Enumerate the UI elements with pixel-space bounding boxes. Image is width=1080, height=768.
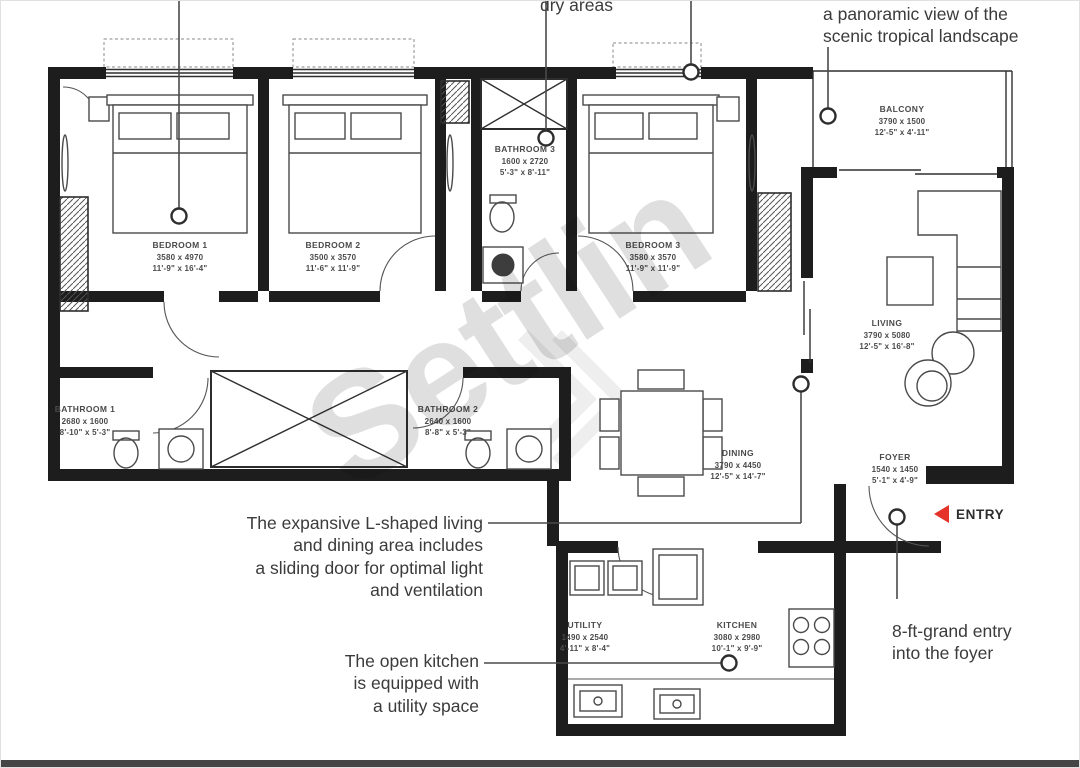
- room-label-bathroom1: BATHROOM 1 2680 x 1600 8'-10" x 5'-3": [55, 403, 116, 439]
- room-label-dining: DINING 3790 x 4450 12'-5" x 14'-7": [710, 447, 765, 483]
- room-label-bathroom3: BATHROOM 3 1600 x 2720 5'-3" x 8'-11": [495, 143, 556, 179]
- floorplan-page: BEDROOM 1 3580 x 4970 11'-9" x 16'-4" BE…: [0, 0, 1080, 768]
- room-dim-ft: 12'-5" x 16'-8": [859, 341, 914, 353]
- room-dim-ft: 10'-1" x 9'-9": [712, 643, 763, 655]
- living-furniture: [887, 191, 1001, 406]
- room-label-balcony: BALCONY 3790 x 1500 12'-5" x 4'-11": [875, 103, 930, 139]
- room-dim-ft: 4'-11" x 8'-4": [560, 643, 610, 655]
- note-living-dining: The expansive L-shaped living and dining…: [197, 512, 483, 602]
- room-name: LIVING: [859, 317, 914, 330]
- note-panoramic-view: a panoramic view of the scenic tropical …: [823, 3, 1019, 48]
- room-dim-mm: 3500 x 3570: [305, 252, 360, 264]
- note-grand-entry: 8-ft-grand entry into the foyer: [892, 620, 1012, 665]
- entry-marker: ENTRY: [934, 505, 1004, 523]
- room-label-bedroom1: BEDROOM 1 3580 x 4970 11'-9" x 16'-4": [152, 239, 207, 275]
- room-label-kitchen: KITCHEN 3080 x 2980 10'-1" x 9'-9": [712, 619, 763, 655]
- room-name: DINING: [710, 447, 765, 460]
- room-dim-mm: 3790 x 5080: [859, 330, 914, 342]
- dashed-projections: [104, 39, 701, 67]
- room-dim-ft: 5'-3" x 8'-11": [495, 167, 556, 179]
- room-name: KITCHEN: [712, 619, 763, 632]
- bottom-strip: [1, 760, 1079, 767]
- room-label-bedroom2: BEDROOM 2 3500 x 3570 11'-6" x 11'-9": [305, 239, 360, 275]
- room-dim-mm: 3790 x 4450: [710, 460, 765, 472]
- room-name: FOYER: [872, 451, 919, 464]
- room-name: BATHROOM 3: [495, 143, 556, 156]
- room-name: BEDROOM 2: [305, 239, 360, 252]
- room-dim-ft: 11'-9" x 16'-4": [152, 263, 207, 275]
- room-name: UTILITY: [560, 619, 610, 632]
- entry-label: ENTRY: [956, 507, 1004, 522]
- note-dry-areas: dry areas: [540, 0, 613, 16]
- room-label-utility: UTILITY 1490 x 2540 4'-11" x 8'-4": [560, 619, 610, 655]
- room-dim-ft: 12'-5" x 14'-7": [710, 471, 765, 483]
- room-name: BEDROOM 1: [152, 239, 207, 252]
- room-dim-mm: 1600 x 2720: [495, 156, 556, 168]
- room-dim-mm: 3790 x 1500: [875, 116, 930, 128]
- entry-arrow-icon: [934, 505, 949, 523]
- room-dim-mm: 2680 x 1600: [55, 416, 116, 428]
- room-dim-mm: 1490 x 2540: [560, 632, 610, 644]
- room-dim-mm: 1540 x 1450: [872, 464, 919, 476]
- room-dim-ft: 5'-1" x 4'-9": [872, 475, 919, 487]
- room-label-foyer: FOYER 1540 x 1450 5'-1" x 4'-9": [872, 451, 919, 487]
- room-dim-ft: 12'-5" x 4'-11": [875, 127, 930, 139]
- room-dim-ft: 8'-10" x 5'-3": [55, 427, 116, 439]
- room-name: BATHROOM 1: [55, 403, 116, 416]
- room-dim-mm: 3580 x 4970: [152, 252, 207, 264]
- room-name: BALCONY: [875, 103, 930, 116]
- room-dim-mm: 3080 x 2980: [712, 632, 763, 644]
- room-dim-ft: 11'-6" x 11'-9": [305, 263, 360, 275]
- note-open-kitchen: The open kitchen is equipped with a util…: [301, 650, 479, 717]
- room-label-living: LIVING 3790 x 5080 12'-5" x 16'-8": [859, 317, 914, 353]
